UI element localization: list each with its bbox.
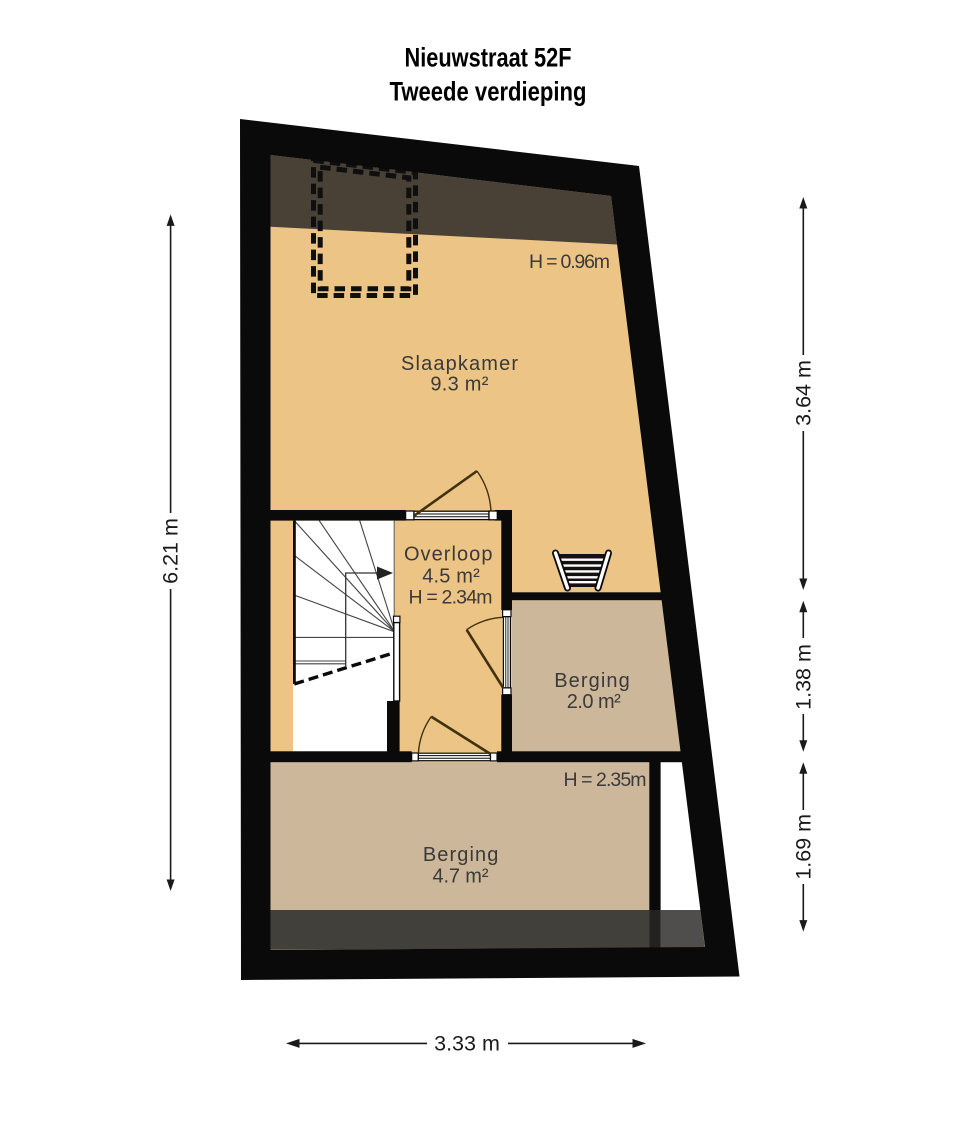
svg-text:4.5 m²: 4.5 m² (422, 566, 480, 588)
svg-text:Nieuwstraat 52F: Nieuwstraat 52F (405, 43, 572, 73)
svg-text:Berging: Berging (554, 670, 630, 692)
svg-text:3.33 m: 3.33 m (434, 1031, 500, 1055)
svg-text:2.0 m²: 2.0 m² (567, 691, 621, 713)
svg-text:3.64 m: 3.64 m (791, 360, 815, 426)
svg-text:Overloop: Overloop (404, 544, 493, 566)
svg-text:H = 2.35m: H = 2.35m (564, 769, 647, 791)
svg-text:6.21 m: 6.21 m (159, 518, 183, 584)
svg-text:Berging: Berging (423, 844, 498, 866)
svg-text:H = 2.34m: H = 2.34m (409, 587, 493, 609)
svg-text:1.38 m: 1.38 m (791, 644, 815, 710)
svg-text:9.3 m²: 9.3 m² (430, 374, 488, 396)
svg-text:Slaapkamer: Slaapkamer (401, 353, 518, 375)
svg-text:Tweede verdieping: Tweede verdieping (390, 77, 587, 107)
svg-text:4.7 m²: 4.7 m² (433, 865, 489, 887)
svg-text:1.69 m: 1.69 m (791, 814, 815, 880)
svg-text:H = 0.96m: H = 0.96m (529, 251, 610, 273)
